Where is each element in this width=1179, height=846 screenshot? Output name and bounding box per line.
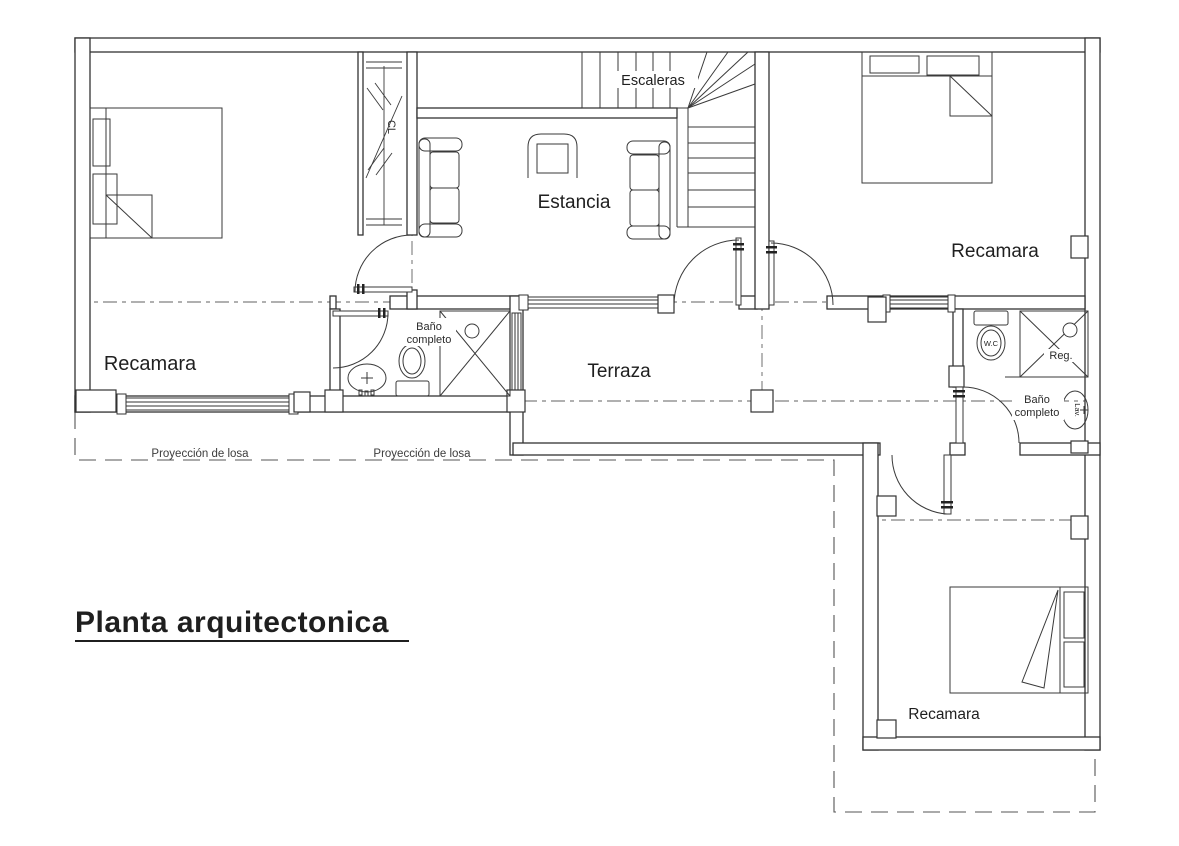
room-label-bedroom-lower: Recamara	[908, 706, 980, 723]
doors-group	[333, 235, 1019, 514]
fixture-label-toilet: W.C	[984, 339, 999, 348]
room-label-bath-left-1: Baño	[416, 321, 442, 333]
axis-centerlines	[75, 38, 1100, 750]
columns-group	[76, 236, 1088, 738]
room-label-living: Estancia	[538, 192, 611, 213]
floor-plan-page: Escaleras Estancia Recamara Recamara Rec…	[0, 0, 1179, 846]
floor-plan-canvas: Escaleras Estancia Recamara Recamara Rec…	[0, 0, 1179, 846]
toilet-right-tank	[974, 311, 1008, 325]
bed-top-right	[862, 52, 992, 183]
slab-projection-label-1: Proyección de losa	[151, 448, 249, 460]
slab-projection-label-2: Proyección de losa	[373, 448, 471, 460]
closet-interior	[366, 62, 402, 225]
bed-lower-right	[950, 587, 1088, 693]
sofa-left	[419, 138, 462, 237]
room-label-bath-right-1: Baño	[1024, 394, 1050, 406]
room-label-stairs: Escaleras	[621, 73, 685, 89]
room-label-bedroom-right: Recamara	[951, 241, 1039, 262]
room-label-terrace: Terraza	[587, 361, 651, 382]
page-title: Planta arquitectonica	[75, 606, 389, 639]
fixture-label-shower: Reg.	[1049, 350, 1072, 362]
room-label-bath-left-2: completo	[407, 334, 452, 346]
room-label-bedroom-left: Recamara	[104, 353, 197, 375]
title-underline	[75, 640, 409, 642]
bed-left	[90, 108, 222, 238]
closet-label: CL	[385, 120, 397, 134]
sofa-right	[627, 141, 670, 239]
walls-group	[75, 38, 1100, 750]
toilet-left-tank	[396, 381, 429, 396]
armchair	[528, 134, 577, 178]
fixture-label-sink: Lav.	[1073, 403, 1082, 417]
room-label-bath-right-2: completo	[1015, 407, 1060, 419]
